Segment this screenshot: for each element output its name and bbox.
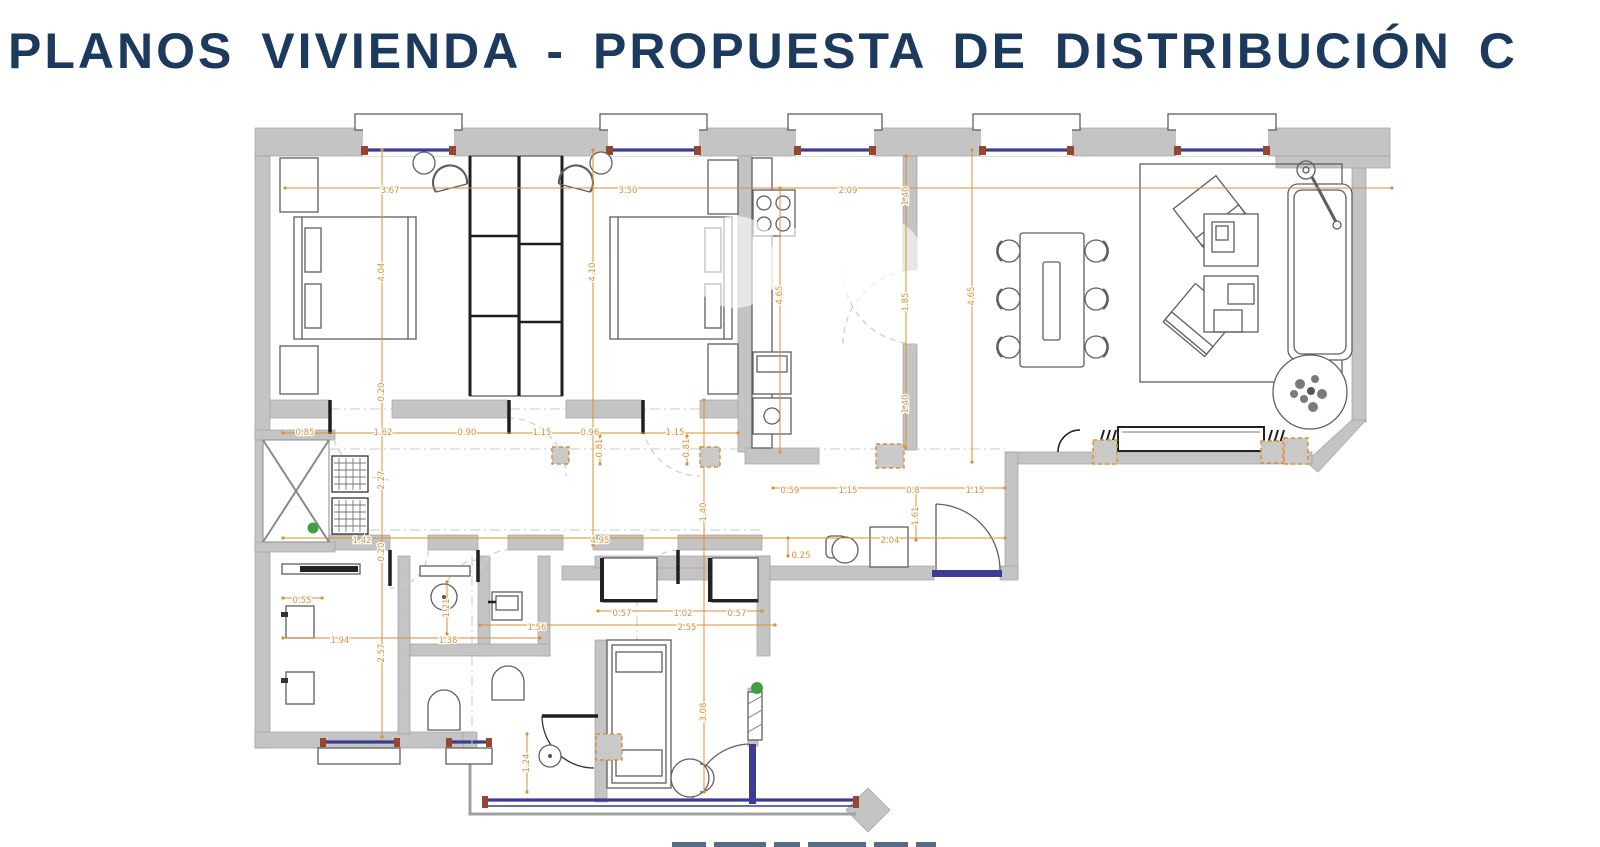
svg-text:2.04: 2.04 [881,536,900,546]
svg-text:0.8: 0.8 [906,486,920,496]
svg-text:2.57: 2.57 [377,644,387,663]
window-icon [1168,114,1276,156]
cabinet [281,672,314,704]
svg-text:4.04: 4.04 [377,263,387,282]
window-icon [355,114,462,156]
toilet-icon [492,666,524,700]
utility-rack [748,692,762,740]
radiator-grille [332,498,368,534]
svg-text:1.15: 1.15 [666,428,685,438]
window-icon [318,738,400,764]
svg-text:4.65: 4.65 [775,286,785,305]
cabinet [281,606,314,638]
closet-niche [708,558,758,602]
svg-text:0.90: 0.90 [458,428,477,438]
hall-chair [826,536,858,563]
entrance-door [932,504,1002,577]
bedroom1-nightstand [280,158,318,212]
bedroom2-nightstand [708,344,738,394]
shower-room [539,716,598,768]
coffee-table [1204,214,1258,266]
svg-text:1.61: 1.61 [911,507,921,526]
svg-text:1.38: 1.38 [439,636,458,646]
svg-text:0.20: 0.20 [377,543,387,562]
washbasin-icon [488,592,522,620]
bedroom2-armchair [559,152,612,192]
bedroom1-nightstand [280,346,318,394]
svg-text:1.62: 1.62 [374,428,393,438]
bedroom1-armchair [413,152,467,192]
radiator-grille [332,456,368,492]
coffee-table [1204,276,1258,332]
svg-text:1.56: 1.56 [528,623,547,633]
svg-text:0.85: 0.85 [296,428,315,438]
svg-text:0.57: 0.57 [613,609,632,619]
window-icon [788,114,882,156]
svg-text:2.27: 2.27 [377,471,387,490]
kitchen-sink [753,352,791,434]
svg-text:1.40: 1.40 [901,395,911,414]
svg-text:4.10: 4.10 [588,263,598,282]
svg-text:3.50: 3.50 [619,186,638,196]
plant-icon [1273,355,1347,429]
svg-text:1.15: 1.15 [966,486,985,496]
svg-text:1.21: 1.21 [442,599,452,618]
svg-text:0.57: 0.57 [728,609,747,619]
bench-radiator [1058,427,1284,452]
svg-text:1.24: 1.24 [522,754,532,773]
cutoff-text-fragment [672,842,936,847]
svg-text:1.40: 1.40 [699,503,709,522]
svg-text:0.81: 0.81 [682,439,692,458]
window-icon [446,738,492,764]
svg-text:2.55: 2.55 [678,623,697,633]
hall-console-table [870,527,908,567]
svg-text:3.08: 3.08 [699,703,709,722]
dining-table [1020,233,1084,367]
svg-text:1.94: 1.94 [331,636,350,646]
svg-text:2.09: 2.09 [839,186,858,196]
svg-text:1.40: 1.40 [901,187,911,206]
floor-plan: 3.673.502.094.040.202.270.202.574.101.40… [0,0,1600,847]
shelf [282,564,360,574]
svg-text:1.42: 1.42 [353,536,372,546]
svg-text:1.02: 1.02 [674,609,693,619]
window-icon [973,114,1080,156]
page: PLANOS VIVIENDA - PROPUESTA DE DISTRIBUC… [0,0,1600,847]
single-bed [607,640,671,788]
svg-text:3.67: 3.67 [381,186,400,196]
svg-text:0.55: 0.55 [293,596,312,606]
svg-text:4.65: 4.65 [967,287,977,306]
closet-niche [600,558,657,602]
toilet-icon [428,690,460,730]
svg-text:0.20: 0.20 [377,383,387,402]
svg-text:0.81: 0.81 [595,439,605,458]
svg-text:0.59: 0.59 [781,486,800,496]
watermark [689,216,924,310]
gallery-glazing [482,796,859,808]
elevator-shaft [263,440,329,542]
sofa [1288,184,1352,360]
wardrobe [470,156,562,396]
bedroom1-bed [294,217,416,339]
svg-text:1.15: 1.15 [839,486,858,496]
ball-chair [671,759,714,797]
svg-text:0.96: 0.96 [581,428,600,438]
svg-text:1.15: 1.15 [533,428,552,438]
bedroom2-nightstand [708,160,738,214]
bathroom-counter [420,566,470,576]
svg-text:1.85: 1.85 [901,293,911,312]
window-icon [600,114,707,156]
svg-text:0.25: 0.25 [792,551,811,561]
plant-small [751,682,763,694]
svg-text:4.95: 4.95 [591,536,610,546]
